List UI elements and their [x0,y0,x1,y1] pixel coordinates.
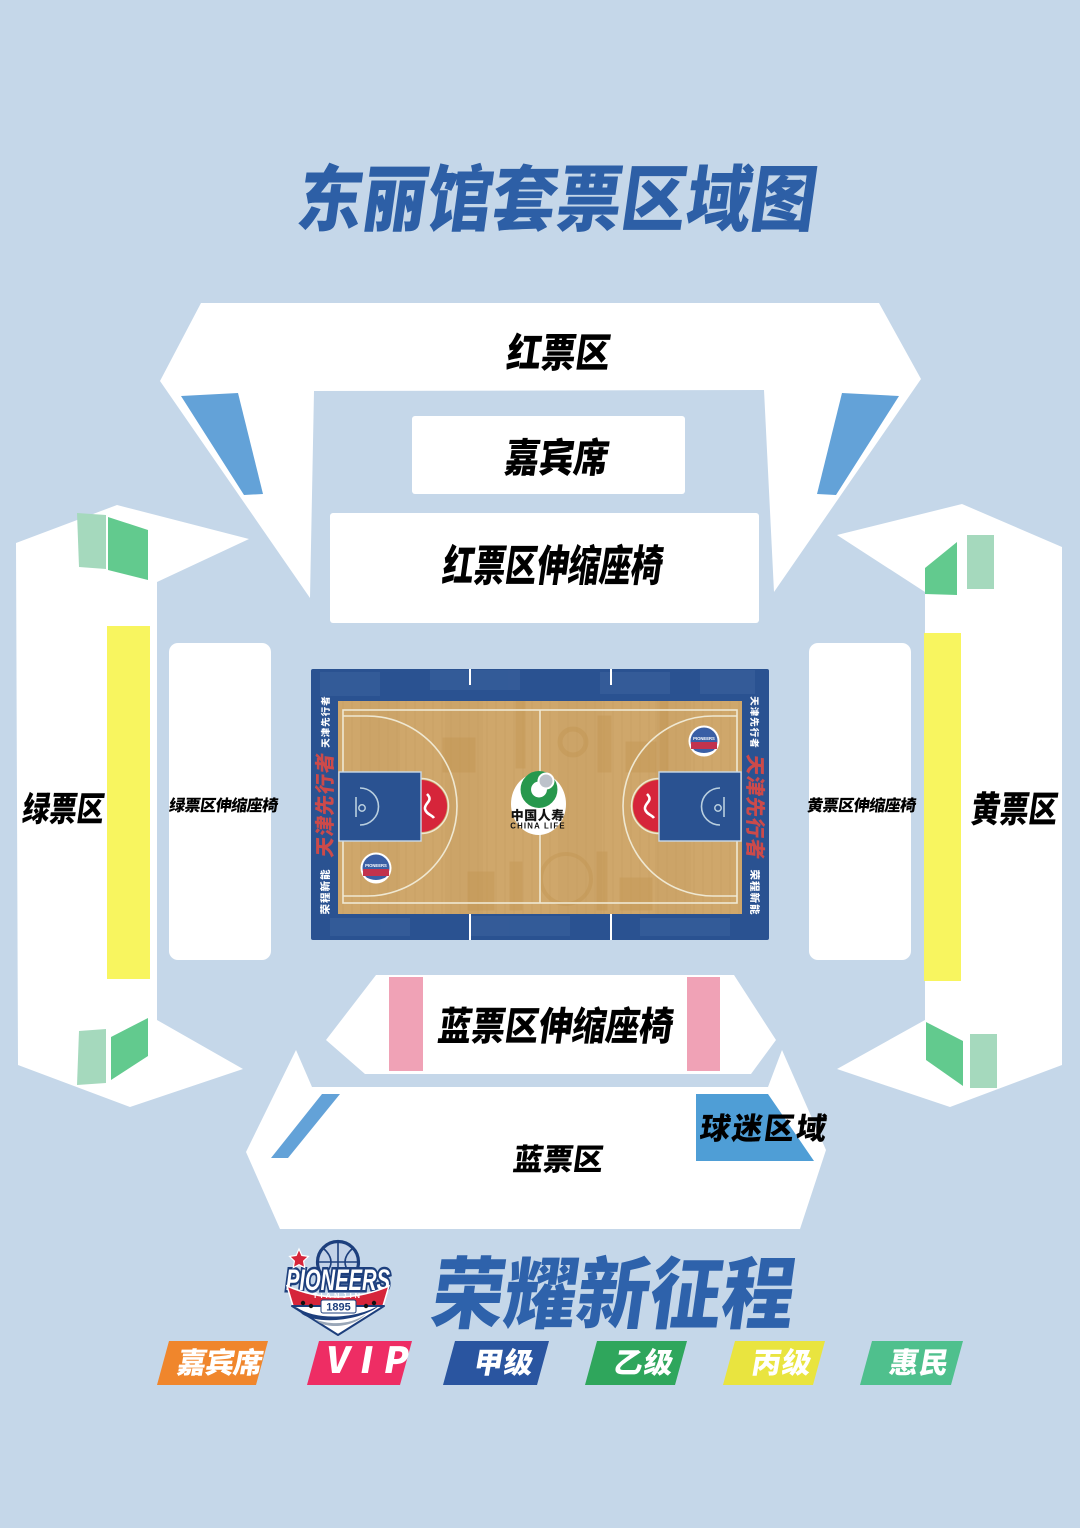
svg-text:TIANJIN: TIANJIN [313,1291,363,1300]
svg-text:PIONEERS: PIONEERS [365,863,387,868]
svg-text:PIONEERS: PIONEERS [693,736,715,741]
svg-text:CHINA LIFE: CHINA LIFE [510,822,565,831]
svg-text:1895: 1895 [326,1302,350,1314]
